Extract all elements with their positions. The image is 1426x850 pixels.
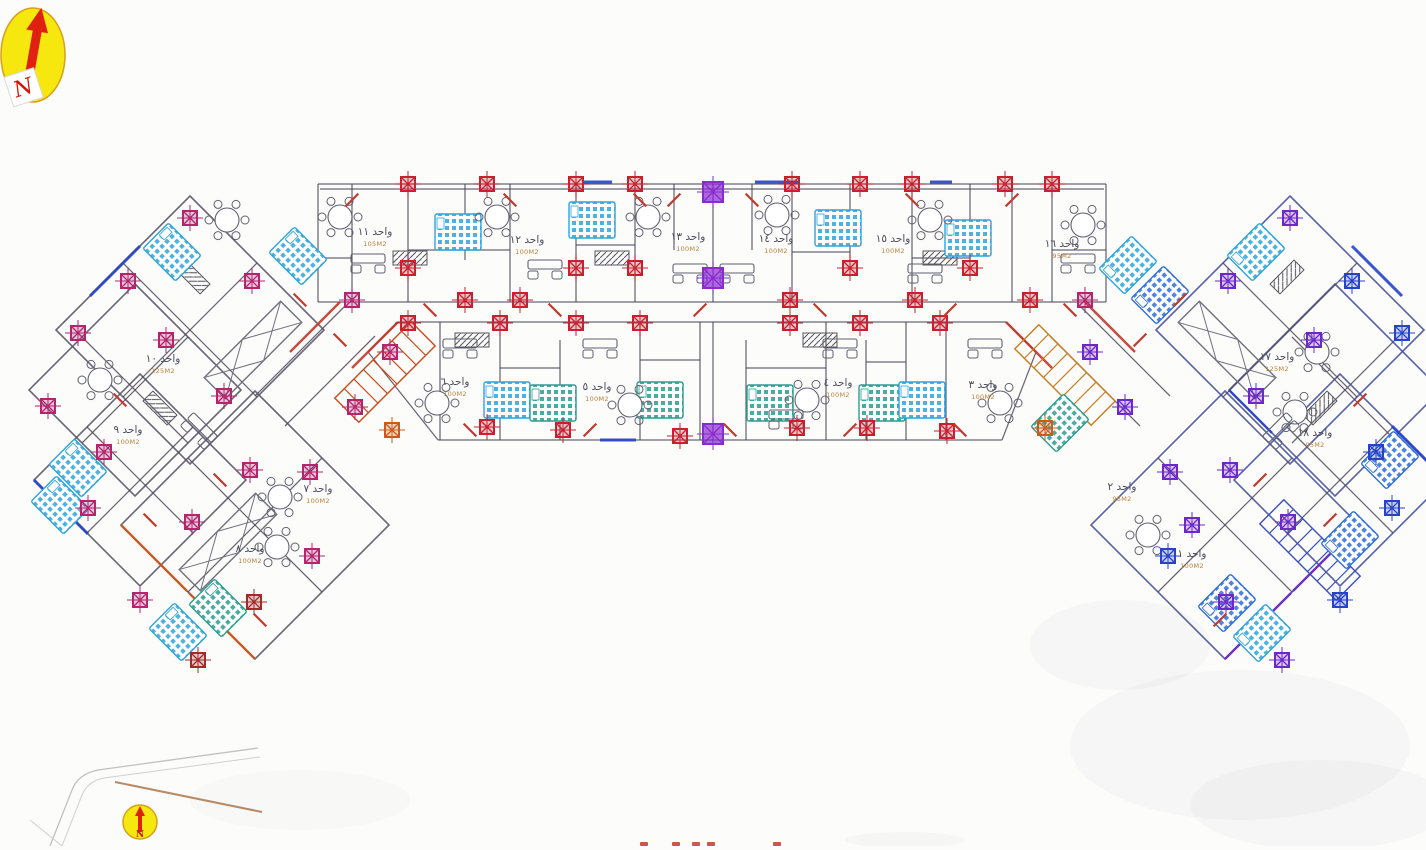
door-swing-mark [944,304,957,317]
sofa [673,264,707,283]
caption-fragment [640,842,648,846]
column [779,171,805,197]
unit-number-text: واحد ١٧ [1260,351,1295,363]
bed [899,382,945,418]
column [1017,287,1043,313]
door-swing-mark [1064,304,1077,317]
unit-area-text: 95M2 [1112,495,1131,503]
counter [455,333,489,347]
unit-area-text: 95M2 [1052,252,1071,260]
unit-area-text: 100M2 [238,557,262,565]
beds [31,202,1419,662]
column [1157,459,1183,485]
column [1277,205,1303,231]
bed [1227,223,1285,281]
door-swing-mark [549,304,562,317]
dining-table [78,360,122,399]
unit-number-text: واحد ٧ [304,483,333,495]
unit-label: واحد ١٧125M2 [1260,351,1295,373]
bed [859,385,905,421]
floor-plan-svg: واحد ١100M2واحد ٢95M2واحد ٣100M2واحد ٤10… [0,0,1426,846]
unit-label: واحد ٦100M2 [441,376,470,398]
unit-area-text: 100M2 [881,247,905,255]
sofa [528,260,562,279]
column [395,171,421,197]
door-swing-mark [1324,514,1337,527]
unit-number-text: واحد ٩ [114,424,143,436]
unit-area-text: 100M2 [443,390,467,398]
column [902,287,928,313]
bed [435,214,481,250]
dining-table [318,197,362,236]
counter [1270,260,1304,294]
column [957,255,983,281]
door-swing-mark [1254,474,1267,487]
column [697,262,729,294]
staircase [179,493,277,591]
column [177,205,203,231]
door-swing-mark [464,424,477,437]
column [563,255,589,281]
unit-number-text: واحد ١٠ [146,353,181,365]
unit-area-text: 100M2 [116,438,140,446]
column [1327,587,1353,613]
unit-area-text: 100M2 [764,247,788,255]
unit-number-text: واحد ١٦ [1045,238,1080,250]
unit-area-text: 125M2 [151,367,175,375]
column [899,171,925,197]
caption-fragment [692,842,700,846]
bed [815,210,861,246]
drawing-stage: واحد ١100M2واحد ٢95M2واحد ٣100M2واحد ٤10… [0,0,1426,846]
unit-number-text: واحد ٨ [236,543,265,555]
sofa [908,264,942,283]
unit-area-text: 100M2 [306,497,330,505]
unit-number-text: واحد ٤ [824,377,853,389]
column [667,423,693,449]
staircase [204,301,302,399]
column [627,310,653,336]
column [339,287,365,313]
unit-label: واحد ٧100M2 [304,483,333,505]
unit-label: واحد ١٦95M2 [1045,238,1080,260]
dining-table [258,477,302,516]
door-swing-mark [844,424,857,437]
door-swing-mark [584,424,597,437]
sofa [583,339,617,358]
unit-number-text: واحد ١١ [358,226,393,238]
bed [569,202,615,238]
column [847,171,873,197]
bed [484,382,530,418]
column [1112,394,1138,420]
column [563,310,589,336]
north-arrow-small-icon: N [123,805,157,840]
column [237,457,263,483]
dining-tables [78,195,1339,566]
door-swing-mark [954,424,967,437]
column [127,587,153,613]
unit-area-text: 105M2 [363,240,387,248]
column [507,287,533,313]
column [1243,383,1269,409]
column [395,310,421,336]
unit-area-text: 100M2 [585,395,609,403]
unit-label: واحد ١٥100M2 [876,233,911,255]
unit-number-text: واحد ١ [1178,548,1207,560]
door-swing-mark [814,304,827,317]
column [563,171,589,197]
caption-fragment [707,842,715,846]
unit-label: واحد ١٤100M2 [759,233,794,255]
unit-area-text: 95M2 [1305,441,1324,449]
bottom-caption-marks [640,842,781,846]
column [474,171,500,197]
unit-label: واحد ٩100M2 [114,424,143,446]
column [1269,647,1295,673]
counter [803,333,837,347]
unit-area-text: 100M2 [676,245,700,253]
unit-label: واحد ١١105M2 [358,226,393,248]
column [377,339,403,365]
column [837,255,863,281]
door-swing-mark [334,334,347,347]
unit-number-text: واحد ٦ [441,376,470,388]
unit-label: واحد ٤100M2 [824,377,853,399]
door-swing-mark [294,294,307,307]
column [1217,457,1243,483]
bed [530,385,576,421]
unit-area-text: 100M2 [971,393,995,401]
caption-fragment [773,842,781,846]
unit-number-text: واحد ١٢ [510,234,545,246]
bed [945,220,991,256]
column [622,171,648,197]
unit-label: واحد ١٣100M2 [671,231,706,253]
unit-label: واحد ١٢100M2 [510,234,545,256]
column [1339,268,1365,294]
column [927,310,953,336]
unit-label: واحد ٥100M2 [583,381,612,403]
sofa [720,264,754,283]
door-swing-mark [144,514,157,527]
column [697,418,729,450]
unit-number-text: واحد ٢ [1108,481,1137,493]
caption-fragment [672,842,680,846]
door-swing-mark [1134,334,1147,347]
unit-number-text: واحد ١٨ [1298,427,1333,439]
door-swing-mark [424,304,437,317]
unit-label: واحد ٨100M2 [236,543,265,565]
sofa [968,339,1002,358]
unit-number-text: واحد ٣ [969,379,998,391]
sofa [351,254,385,273]
unit-label: واحد ١٨95M2 [1298,427,1333,449]
unit-number-text: واحد ٥ [583,381,612,393]
unit-number-text: واحد ١٣ [671,231,706,243]
unit-area-text: 100M2 [515,248,539,256]
north-letter-small: N [136,830,144,840]
column [777,310,803,336]
unit-label: واحد ١100M2 [1178,548,1207,570]
column [847,310,873,336]
column [487,310,513,336]
unit-area-text: 125M2 [1265,365,1289,373]
column [697,176,729,208]
column [992,171,1018,197]
column [179,509,205,535]
unit-area-text: 100M2 [1180,562,1204,570]
unit-number-text: واحد ١٥ [876,233,911,245]
column [297,459,323,485]
column [777,287,803,313]
counter [595,251,629,265]
column [1215,268,1241,294]
column [211,383,237,409]
column [1039,171,1065,197]
unit-label: واحد ١٠125M2 [146,353,181,375]
door-swing-mark [254,614,267,627]
column [1072,287,1098,313]
unit-label: واحد ٣100M2 [969,379,998,401]
column [35,393,61,419]
unit-area-text: 100M2 [826,391,850,399]
door-swing-mark [214,474,227,487]
unit-number-text: واحد ١٤ [759,233,794,245]
blueprint-page: { "north_arrow_main": {"label": "N"}, "n… [0,0,1426,846]
column [1379,495,1405,521]
column [1077,339,1103,365]
dining-table [626,197,670,236]
door-swing-mark [694,304,707,317]
column [452,287,478,313]
column [1179,512,1205,538]
north-arrow-icon: N [1,6,65,107]
column [115,268,141,294]
column [239,268,265,294]
staircase [1178,301,1276,399]
column [299,543,325,569]
column [379,417,405,443]
bed [637,382,683,418]
unit-label: واحد ٢95M2 [1108,481,1137,503]
counter [143,391,177,425]
